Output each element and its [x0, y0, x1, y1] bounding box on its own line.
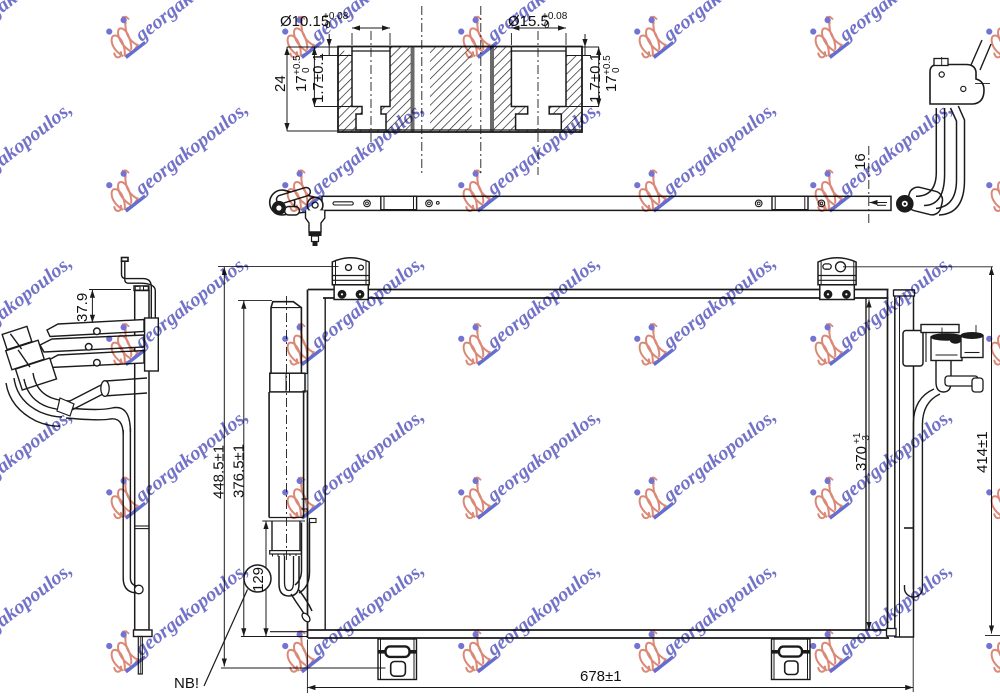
svg-text:NB!: NB! — [174, 675, 199, 692]
svg-text:0: 0 — [611, 67, 622, 73]
svg-text:-3: -3 — [861, 435, 872, 444]
svg-text:414±1: 414±1 — [974, 431, 991, 473]
svg-text:129: 129 — [250, 567, 267, 592]
svg-text:1.7±0.1: 1.7±0.1 — [310, 53, 327, 103]
svg-text:17: 17 — [293, 75, 310, 92]
svg-text:37.9: 37.9 — [74, 293, 91, 322]
svg-text:376.5±1: 376.5±1 — [231, 444, 248, 498]
svg-text:24: 24 — [272, 75, 289, 92]
svg-text:678±1: 678±1 — [580, 668, 622, 685]
svg-text:17: 17 — [603, 75, 620, 92]
svg-text:0: 0 — [544, 20, 550, 31]
